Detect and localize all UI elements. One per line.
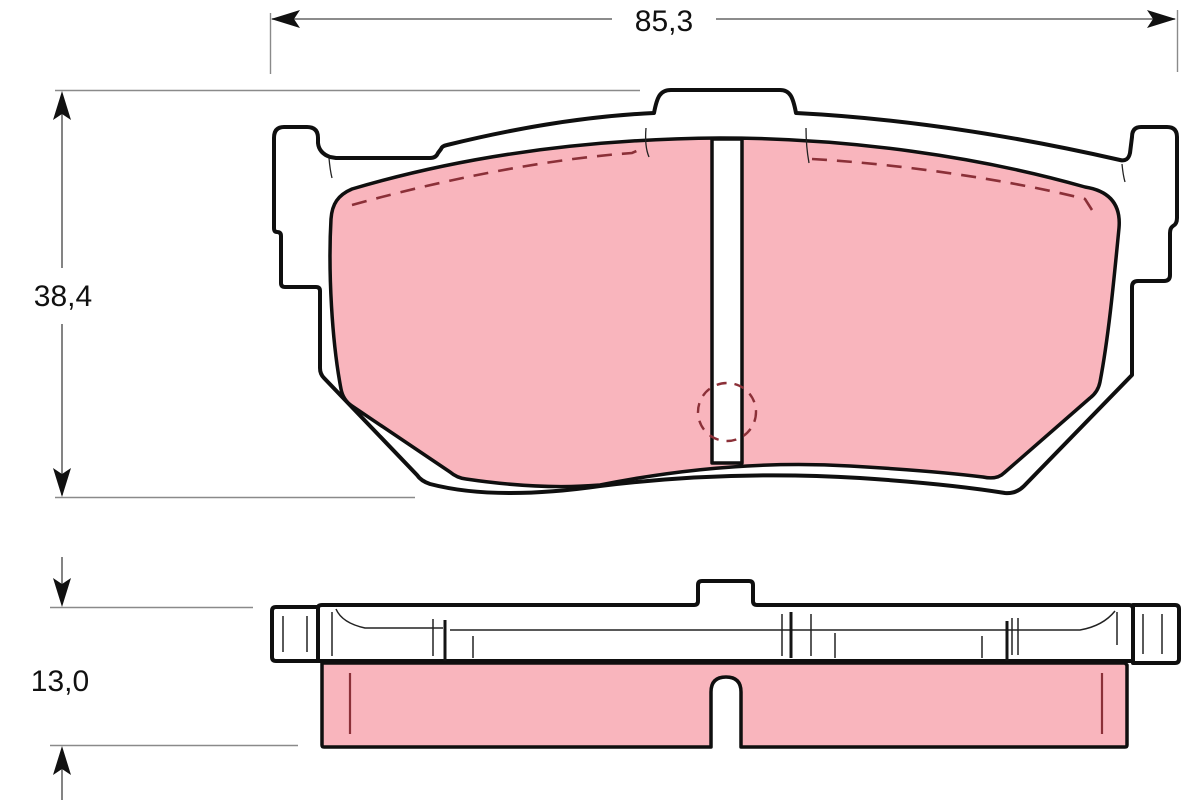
side-right-ear <box>1133 605 1179 663</box>
side-backplate-strip <box>318 581 1133 661</box>
brake-pad-technical-drawing: 85,3 38,4 13,0 <box>0 0 1200 800</box>
dimension-thickness: 13,0 <box>31 557 298 800</box>
width-label: 85,3 <box>635 5 693 38</box>
height-label: 38,4 <box>34 280 92 313</box>
dimension-width: 85,3 <box>271 5 1178 74</box>
side-left-ear <box>272 607 318 661</box>
front-view <box>274 90 1177 493</box>
side-view <box>272 581 1179 747</box>
side-friction-strip <box>322 663 1127 747</box>
technical-drawing-svg: 85,3 38,4 13,0 <box>0 0 1200 800</box>
thickness-label: 13,0 <box>31 665 89 698</box>
